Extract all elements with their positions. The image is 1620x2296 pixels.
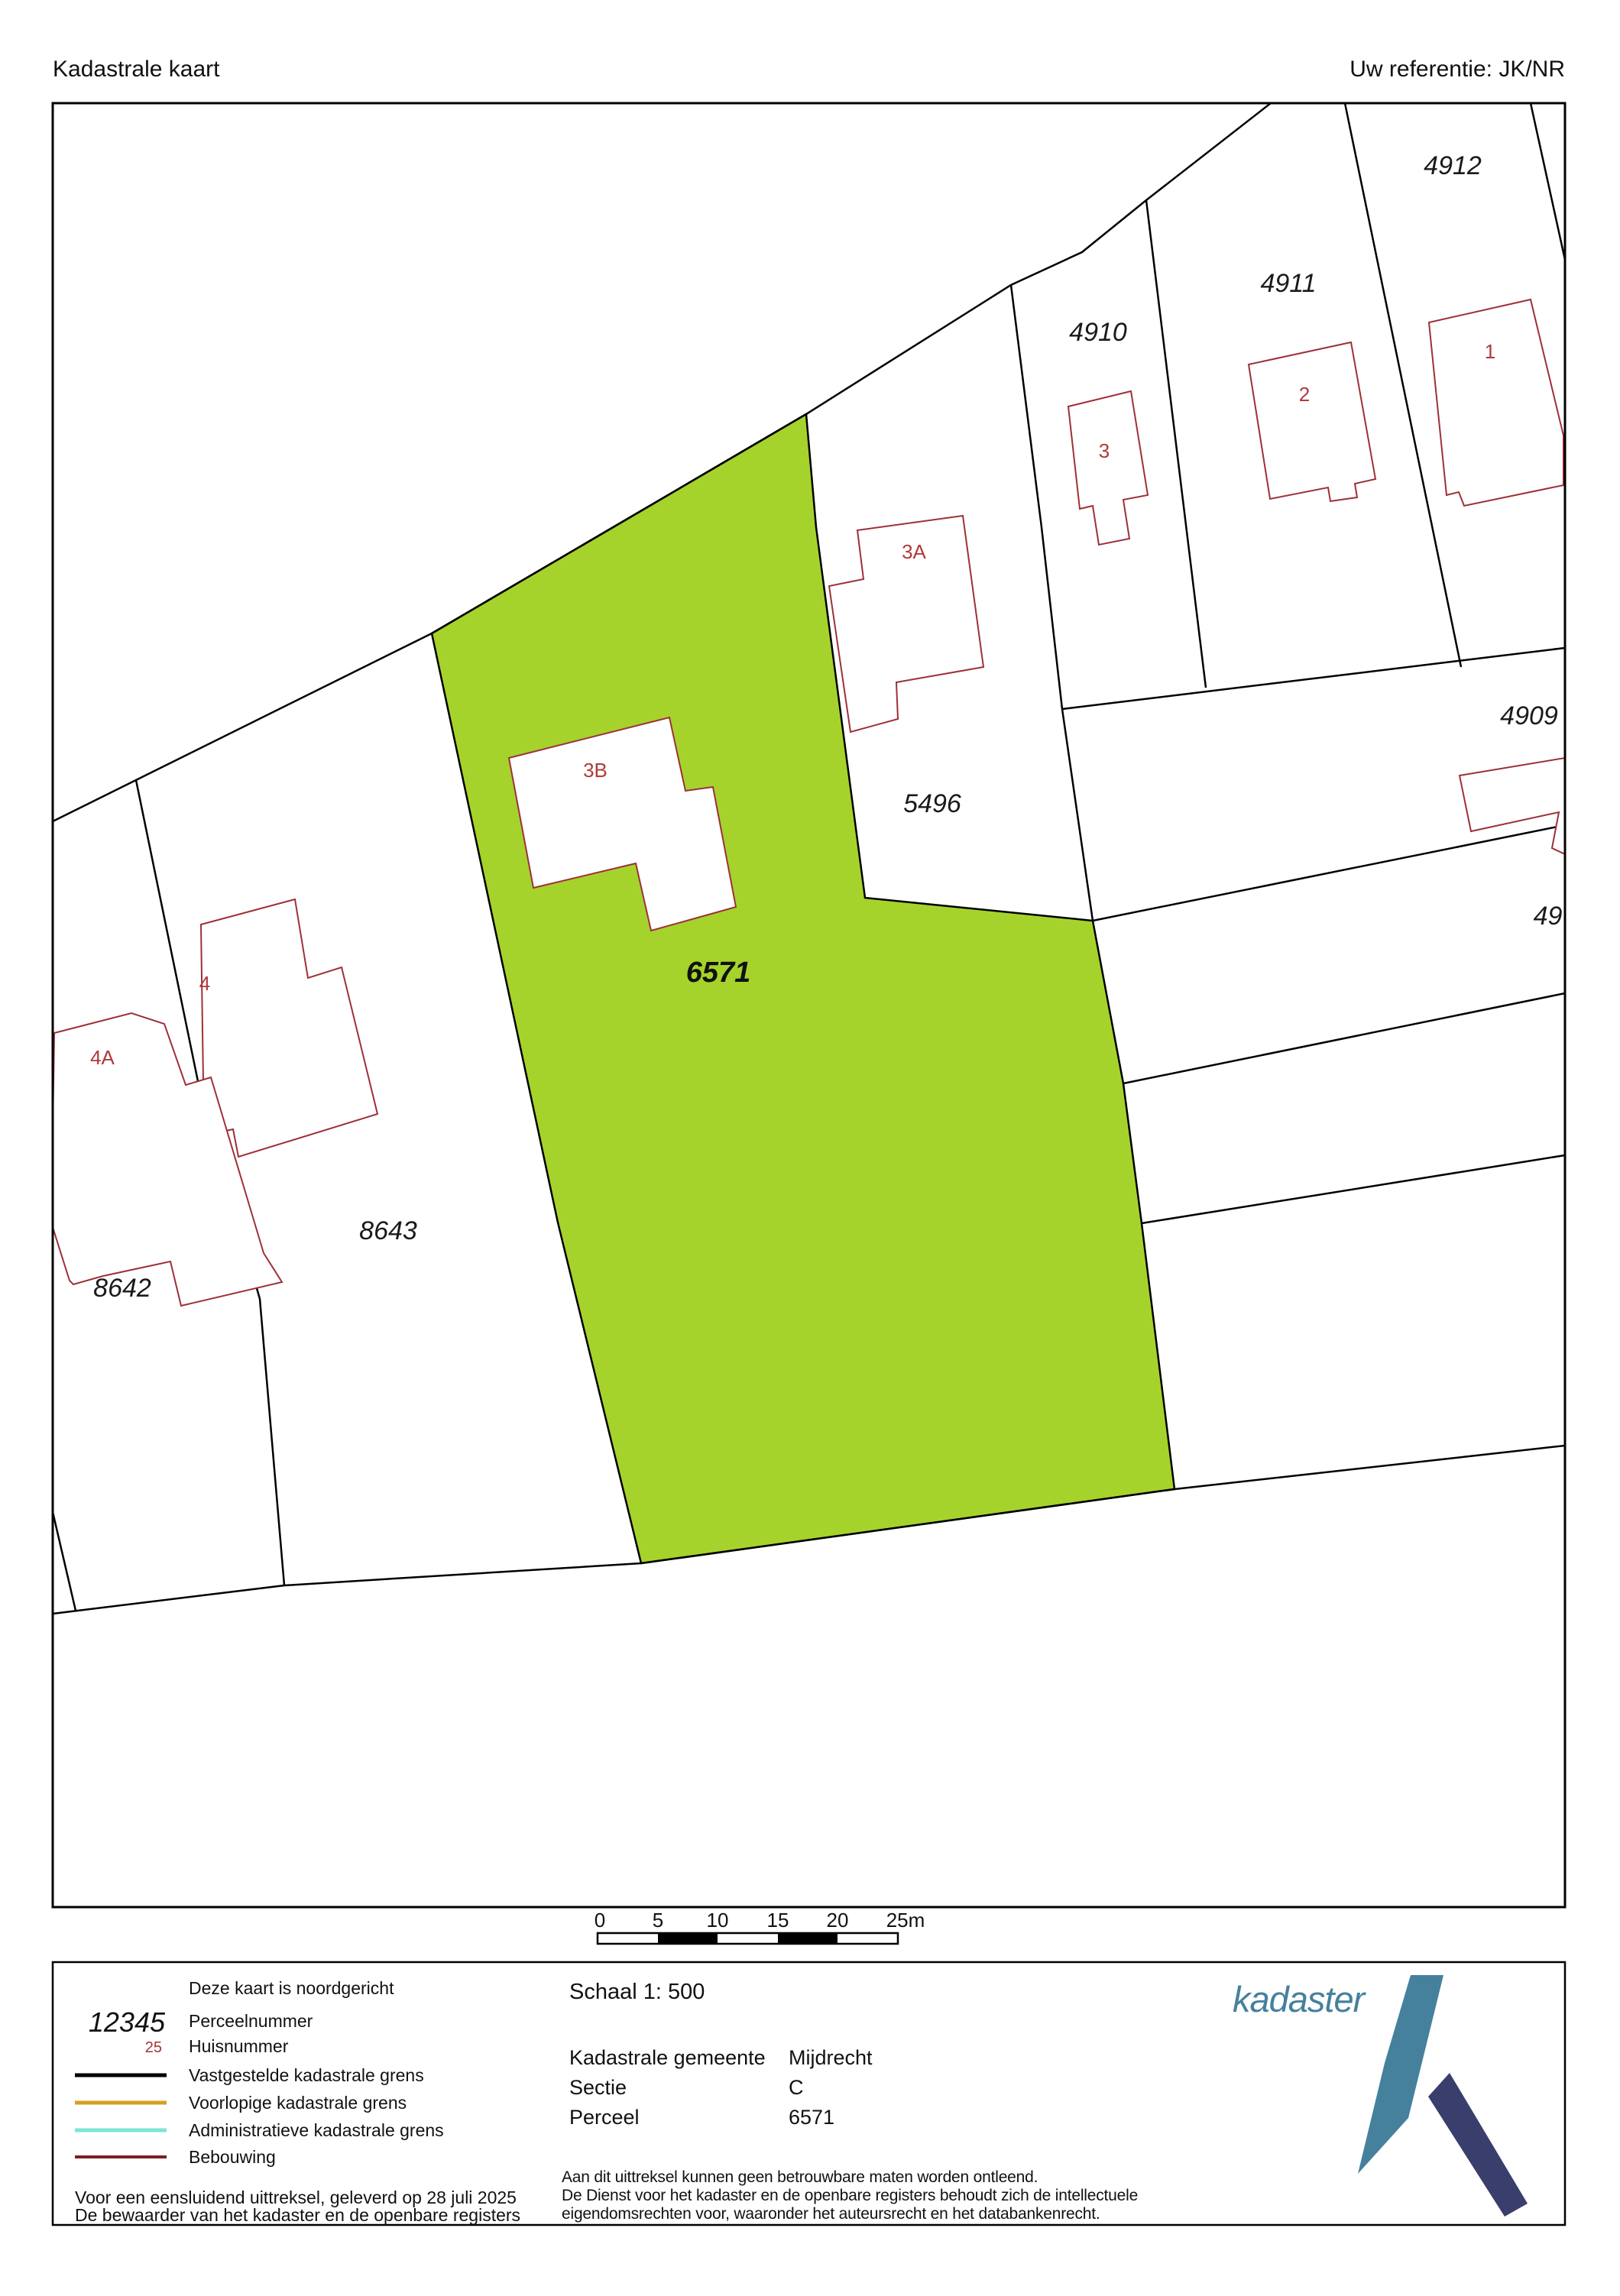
- scale-tick-20: 20: [827, 1909, 849, 1932]
- gemeente-value: Mijdrecht: [789, 2046, 873, 2069]
- house-number-3B: 3B: [583, 759, 607, 782]
- administratieve-grens-label: Administratieve kadastrale grens: [189, 2120, 444, 2140]
- vastgestelde-grens-label: Vastgestelde kadastrale grens: [189, 2065, 424, 2085]
- bebouwing-label: Bebouwing: [189, 2147, 276, 2167]
- parcel-label-4909: 4909: [1500, 701, 1558, 730]
- parcel-label-4912: 4912: [1424, 151, 1482, 180]
- legend-footer-line2: De bewaarder van het kadaster en de open…: [75, 2205, 520, 2225]
- parcel-label-4910: 4910: [1069, 318, 1127, 347]
- parcel-label-6571: 6571: [686, 957, 751, 989]
- kadaster-wordmark: kadaster: [1233, 1979, 1367, 2019]
- parcel-label-496-clipped: 496: [1534, 902, 1577, 931]
- scale-segment-black-1: [658, 1933, 718, 1944]
- perceel-value: 6571: [789, 2106, 834, 2129]
- north-note: Deze kaart is noordgericht: [189, 1978, 394, 1998]
- house-number-4A: 4A: [90, 1046, 115, 1069]
- sectie-value: C: [789, 2076, 804, 2099]
- scale-bar: 0 5 10 15 20 25m: [595, 1909, 925, 1944]
- cadastral-map: 4912 4911 4910 4909 5496 6571 8642 8643 …: [51, 103, 1576, 1907]
- page-title: Kadastrale kaart: [53, 57, 220, 82]
- disclaimer-line2: De Dienst voor het kadaster en de openba…: [562, 2187, 1138, 2204]
- perceel-label: Perceel: [569, 2106, 640, 2129]
- house-number-3: 3: [1099, 439, 1110, 462]
- scale-tick-25m: 25m: [886, 1909, 925, 1932]
- scale-tick-15: 15: [767, 1909, 789, 1932]
- parcel-label-4911: 4911: [1260, 269, 1316, 298]
- scale-segment-black-2: [778, 1933, 838, 1944]
- scale-tick-0: 0: [595, 1909, 605, 1932]
- page: Kadastrale kaart Uw referentie: JK/NR: [0, 0, 1620, 2292]
- scale-bar-frame: [598, 1933, 898, 1944]
- disclaimer-line1: Aan dit uittreksel kunnen geen betrouwba…: [562, 2168, 1038, 2186]
- parcel-label-8643: 8643: [359, 1216, 417, 1245]
- schaal-label: Schaal 1: 500: [569, 1980, 705, 2004]
- huisnummer-sample: 25: [145, 2039, 162, 2056]
- gemeente-label: Kadastrale gemeente: [569, 2046, 766, 2069]
- sectie-label: Sectie: [569, 2076, 627, 2099]
- scale-tick-10: 10: [707, 1909, 729, 1932]
- perceelnummer-sample: 12345: [89, 2006, 166, 2038]
- scale-tick-5: 5: [653, 1909, 663, 1932]
- voorlopige-grens-label: Voorlopige kadastrale grens: [189, 2093, 407, 2113]
- parcel-label-5496: 5496: [903, 789, 961, 818]
- house-number-3A: 3A: [902, 540, 926, 563]
- reference-label: Uw referentie: JK/NR: [1349, 57, 1565, 82]
- parcel-label-8642: 8642: [93, 1274, 151, 1303]
- house-number-1: 1: [1485, 340, 1495, 363]
- house-number-4: 4: [199, 972, 210, 995]
- disclaimer-line3: eigendomsrechten voor, waaronder het aut…: [562, 2205, 1100, 2223]
- house-number-2: 2: [1299, 383, 1310, 406]
- perceelnummer-label: Perceelnummer: [189, 2011, 313, 2031]
- huisnummer-label: Huisnummer: [189, 2036, 289, 2056]
